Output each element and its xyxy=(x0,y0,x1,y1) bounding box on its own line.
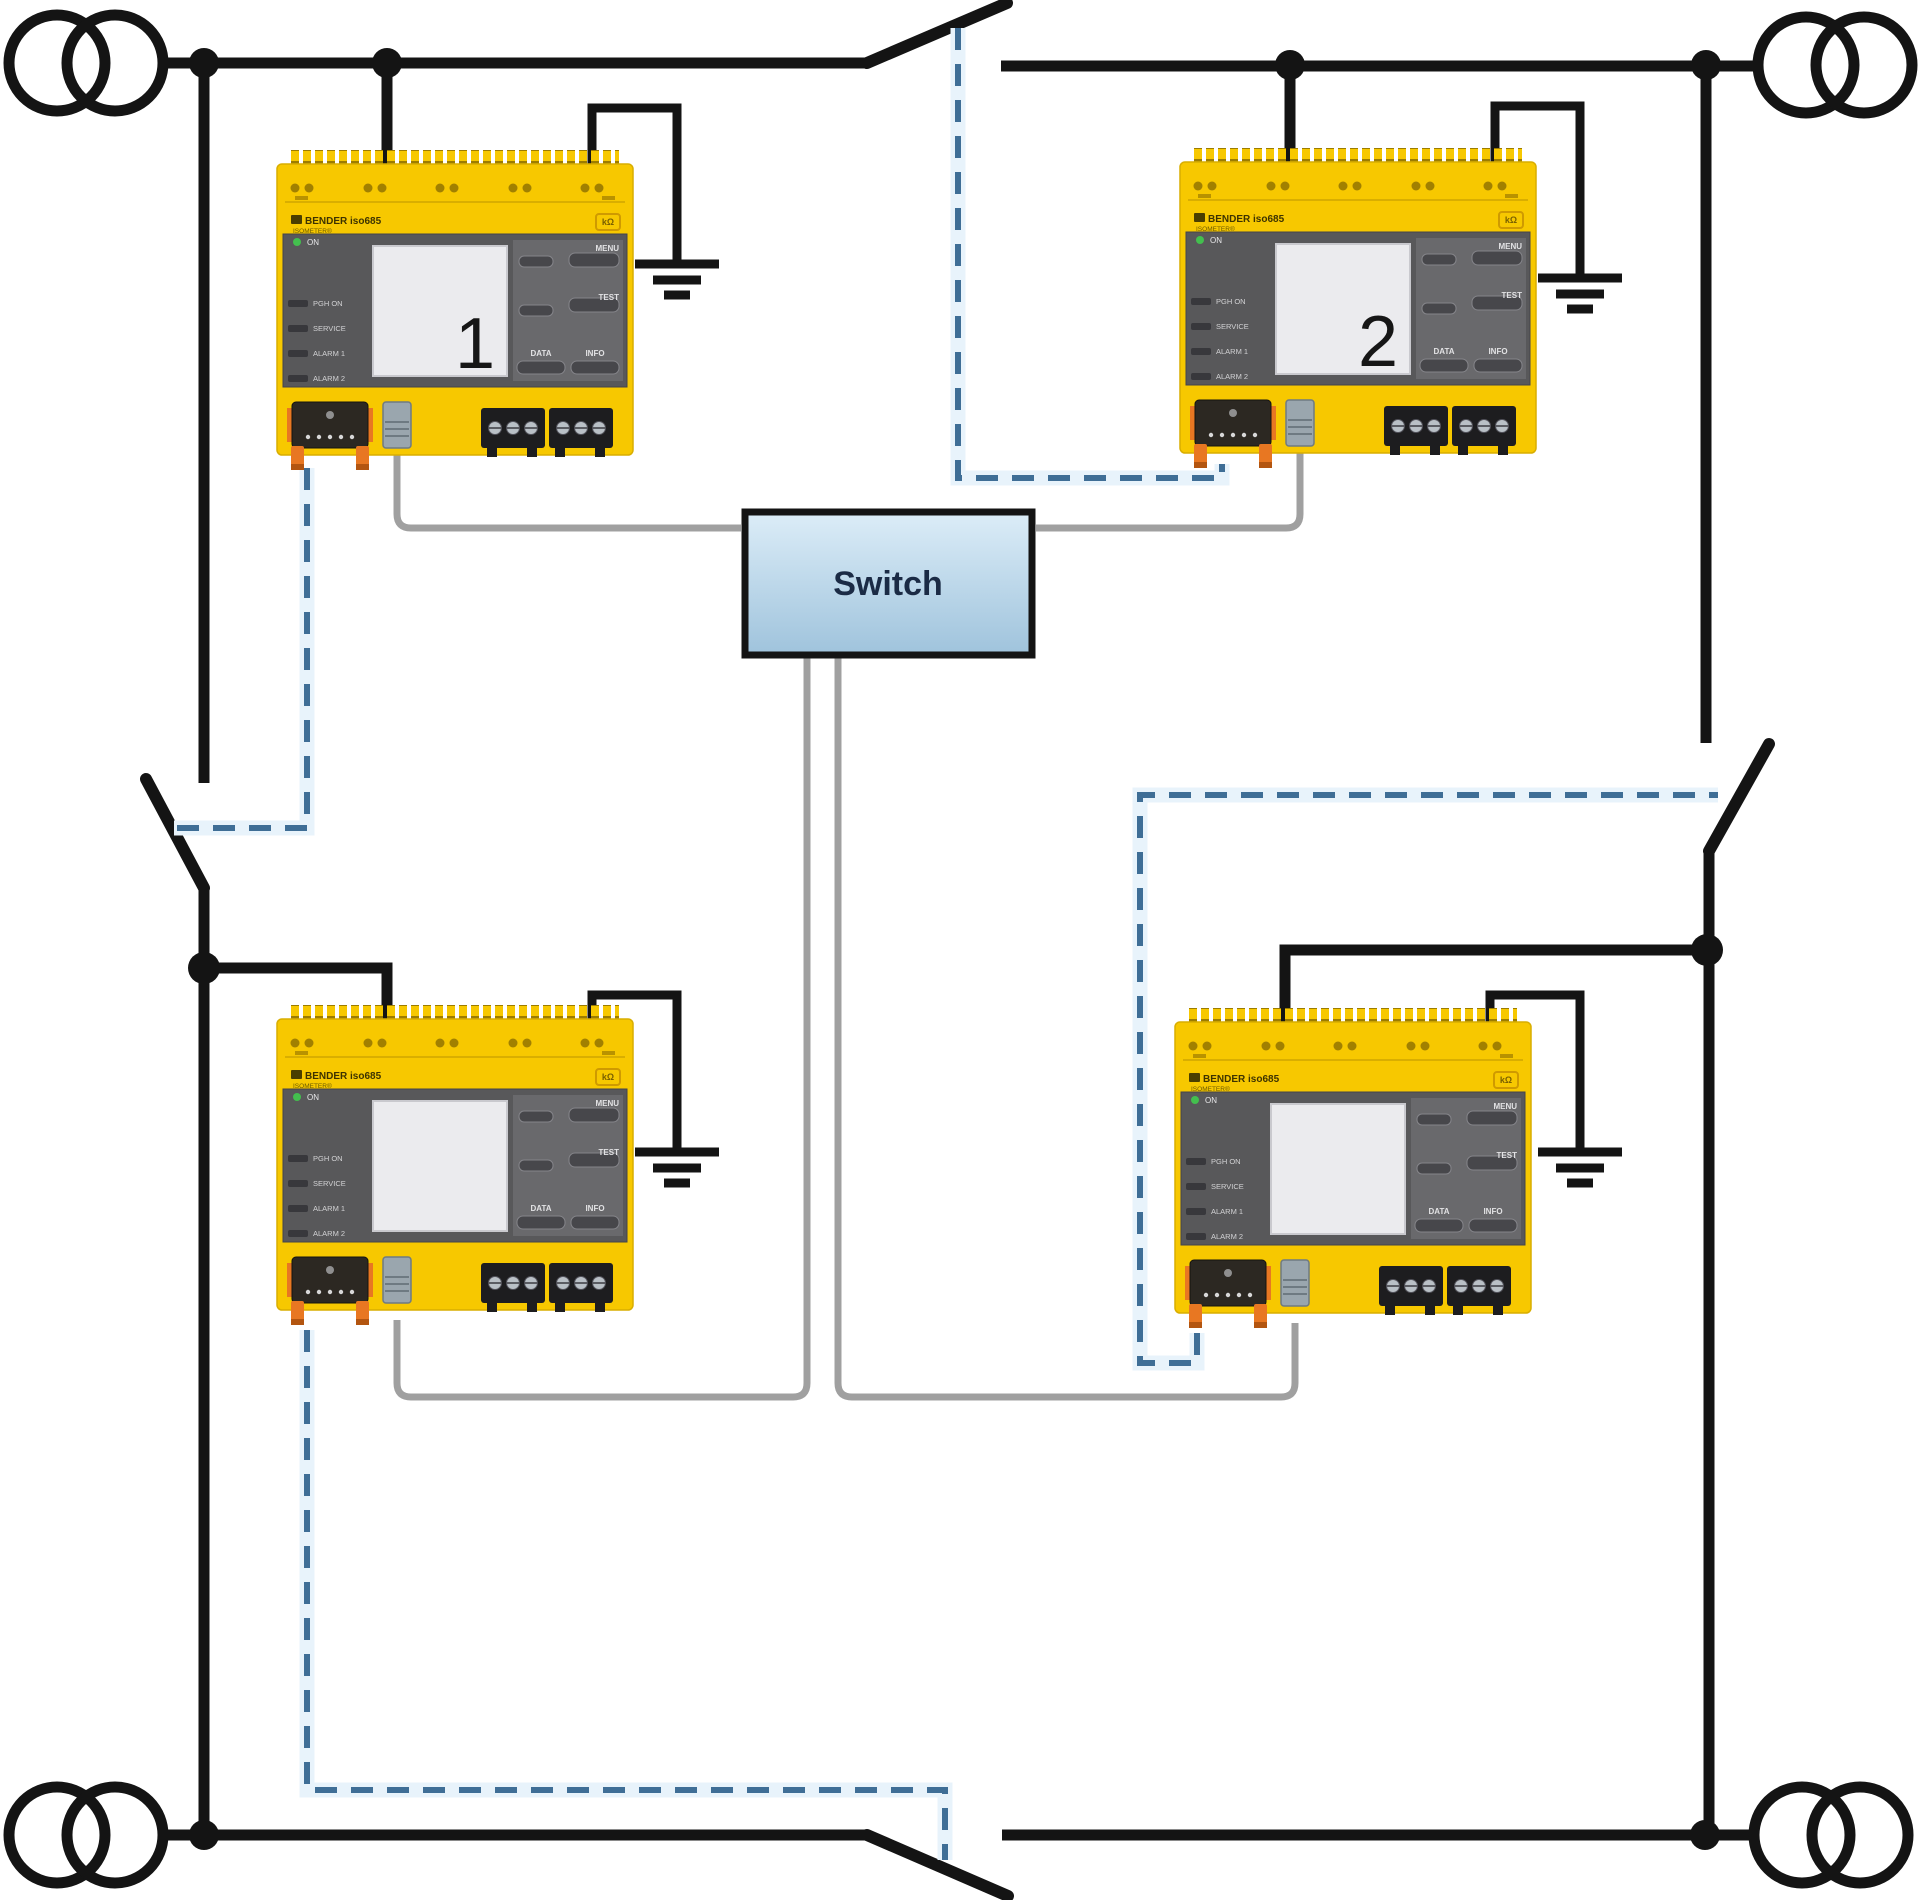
led-label: SERVICE xyxy=(313,1179,346,1188)
brand-label: BENDER iso685 xyxy=(305,216,382,227)
unit-badge: kΩ xyxy=(1505,215,1517,225)
unit-badge: kΩ xyxy=(1500,1075,1512,1085)
network-cable-device1 xyxy=(397,455,741,528)
led-label: PGH ON xyxy=(313,1154,343,1163)
brand-label: BENDER iso685 xyxy=(305,1071,382,1082)
unit-badge: kΩ xyxy=(602,217,614,227)
wiring-diagram: Switch BENDER iso685 ISOMETER® kΩ ON PGH… xyxy=(0,0,1920,1900)
switch-label: Switch xyxy=(833,565,943,603)
test-button-label: TEST xyxy=(599,293,620,302)
led-label: ALARM 1 xyxy=(1216,347,1248,356)
led-label: ALARM 1 xyxy=(1211,1207,1243,1216)
test-button-label: TEST xyxy=(1497,1151,1518,1160)
led-label: SERVICE xyxy=(1216,322,1249,331)
led-label: ALARM 1 xyxy=(313,349,345,358)
subbrand-label: ISOMETER® xyxy=(293,1082,332,1090)
led-label-on: ON xyxy=(307,1093,319,1102)
led-label: SERVICE xyxy=(1211,1182,1244,1191)
menu-button-label: MENU xyxy=(1493,1102,1517,1111)
iso685-device-3 xyxy=(277,1011,633,1325)
led-label-on: ON xyxy=(307,238,319,247)
info-button-label: INFO xyxy=(585,349,604,358)
info-button-label: INFO xyxy=(1488,347,1507,356)
coupling-switch-top-icon xyxy=(867,3,1007,63)
info-button-label: INFO xyxy=(585,1204,604,1213)
switch-box: Switch xyxy=(745,512,1032,655)
led-label: PGH ON xyxy=(1211,1157,1241,1166)
data-button-label: DATA xyxy=(1428,1207,1449,1216)
menu-button-label: MENU xyxy=(595,1099,619,1108)
test-button-label: TEST xyxy=(599,1148,620,1157)
subbrand-label: ISOMETER® xyxy=(1191,1085,1230,1093)
unit-badge: kΩ xyxy=(602,1072,614,1082)
brand-label: BENDER iso685 xyxy=(1208,214,1285,225)
led-label: ALARM 2 xyxy=(313,374,345,383)
data-button-label: DATA xyxy=(530,1204,551,1213)
data-button-label: DATA xyxy=(1433,347,1454,356)
subbrand-label: ISOMETER® xyxy=(293,227,332,235)
led-label: ALARM 2 xyxy=(1211,1232,1243,1241)
led-label-on: ON xyxy=(1210,236,1222,245)
control-line-device1-to-switch-left xyxy=(174,468,307,828)
data-button-label: DATA xyxy=(530,349,551,358)
display-number: 1 xyxy=(455,304,495,384)
display-number: 2 xyxy=(1358,302,1398,382)
led-label: SERVICE xyxy=(313,324,346,333)
brand-label: BENDER iso685 xyxy=(1203,1074,1280,1085)
led-label: PGH ON xyxy=(1216,297,1246,306)
led-label-on: ON xyxy=(1205,1096,1217,1105)
led-label: ALARM 2 xyxy=(313,1229,345,1238)
control-line-device3-to-switch-bottom xyxy=(307,1330,945,1860)
led-label: PGH ON xyxy=(313,299,343,308)
menu-button-label: MENU xyxy=(595,244,619,253)
test-button-label: TEST xyxy=(1502,291,1523,300)
menu-button-label: MENU xyxy=(1498,242,1522,251)
led-label: ALARM 2 xyxy=(1216,372,1248,381)
info-button-label: INFO xyxy=(1483,1207,1502,1216)
subbrand-label: ISOMETER® xyxy=(1196,225,1235,233)
iso685-device-4 xyxy=(1175,1014,1531,1328)
led-label: ALARM 1 xyxy=(313,1204,345,1213)
